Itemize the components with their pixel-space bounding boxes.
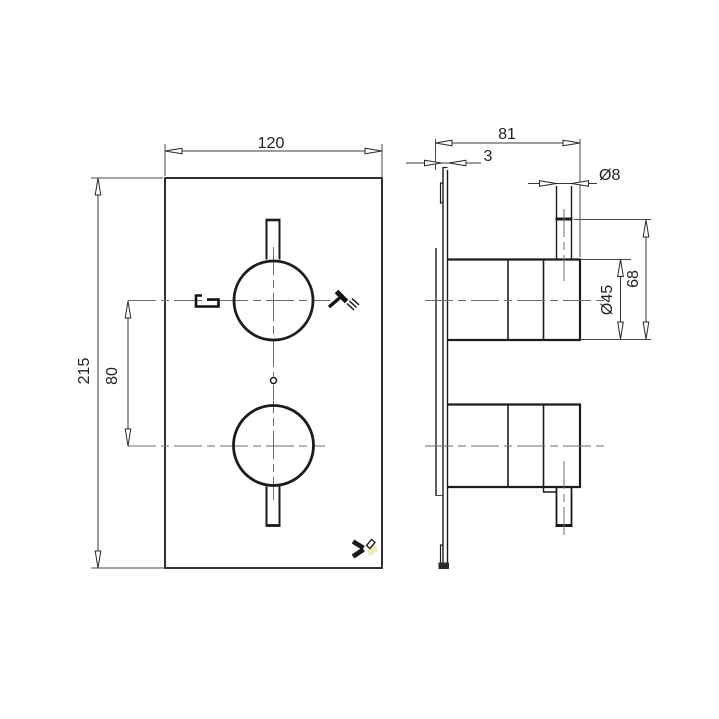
dimension-handle-offset: 80 [104, 301, 131, 446]
dimension-plate-thickness: 3 [406, 148, 493, 166]
front-height-label: 215 [76, 358, 93, 385]
dimension-depth: 81 [436, 126, 581, 257]
stem-diameter-label: Ø8 [599, 167, 620, 184]
plate-foot [439, 563, 450, 570]
dimension-front-width: 120 [165, 135, 382, 178]
technical-drawing-canvas: 120 215 80 [0, 0, 719, 719]
trim-diameter-label: Ø45 [599, 285, 616, 315]
brand-logo [353, 540, 378, 557]
depth-label: 81 [498, 126, 516, 143]
shower-head-icon [329, 292, 359, 311]
dimension-handle-height: 68 [574, 220, 651, 340]
front-width-label: 120 [258, 135, 285, 152]
side-view [425, 167, 608, 569]
front-centerlines [128, 247, 330, 500]
screw-dot [271, 378, 277, 384]
faceplate-side [436, 167, 449, 569]
plate-thickness-label: 3 [484, 148, 493, 165]
dimension-trim-diameter: Ø45 [580, 260, 631, 340]
handle-height-label: 68 [625, 270, 642, 288]
upper-body-side [448, 186, 580, 340]
dimension-stem-diameter: Ø8 [528, 167, 620, 186]
front-view [128, 178, 382, 568]
valve-dimension-drawing: 120 215 80 [0, 0, 719, 719]
lower-body-side [448, 405, 580, 526]
handle-offset-label: 80 [104, 367, 121, 385]
